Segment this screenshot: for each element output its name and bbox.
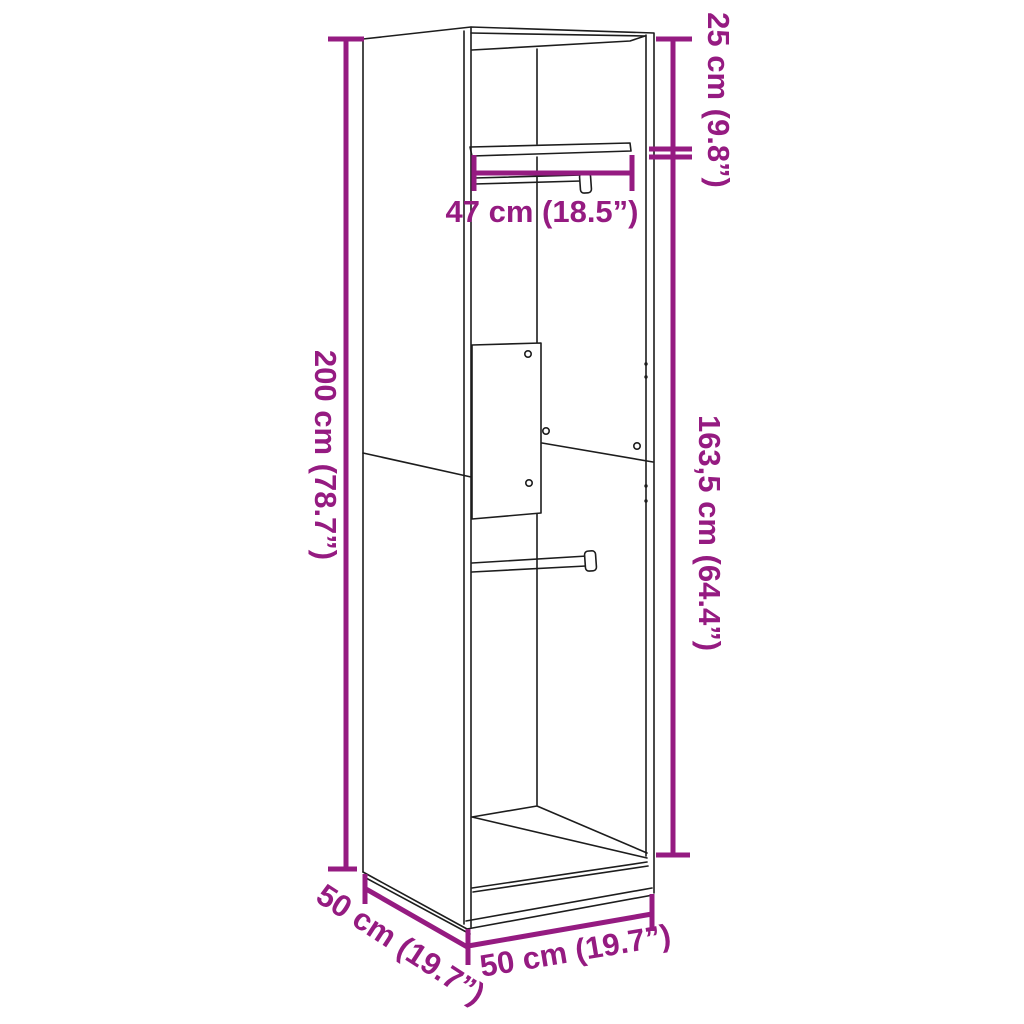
- diagram-canvas: 200 cm (78.7”) 25 cm (9.8”) 163,5 cm (64…: [0, 0, 1024, 1024]
- dimension-line-right-heights: [649, 39, 692, 855]
- right-wall-dowel-dot: [644, 499, 647, 502]
- right-wall-dowel-dot: [644, 362, 647, 365]
- hanging-rod-upper: [474, 175, 582, 184]
- dimension-width: 50 cm (19.7”): [468, 894, 673, 984]
- left-panel-seam: [363, 453, 471, 477]
- hanging-rod-upper-endcap: [579, 173, 591, 194]
- right-wall-dowel-dot: [644, 375, 647, 378]
- back-panel-hole: [634, 443, 640, 449]
- back-panel-seam: [542, 443, 653, 462]
- hanging-rod-lower: [472, 556, 587, 572]
- dimension-inner-width: 47 cm (18.5”): [446, 155, 639, 229]
- dimension-line-inner-width: [474, 155, 632, 191]
- hanging-rod-lower-endcap: [584, 551, 596, 572]
- wardrobe-dimension-diagram: 200 cm (78.7”) 25 cm (9.8”) 163,5 cm (64…: [0, 0, 1024, 1024]
- plinth-top-edge: [472, 862, 648, 892]
- top-shelf: [470, 143, 631, 156]
- dimension-total-height: 200 cm (78.7”): [308, 39, 364, 869]
- back-panel-upper: [472, 343, 541, 519]
- dimension-label-total-height: 200 cm (78.7”): [308, 350, 343, 560]
- dimension-label-top-section: 25 cm (9.8”): [701, 12, 736, 188]
- dimension-label-inner-width: 47 cm (18.5”): [446, 194, 639, 229]
- dimension-label-lower-section: 163,5 cm (64.4”): [692, 415, 727, 651]
- right-wall-dowel-dot: [644, 484, 647, 487]
- front-bottom-edge: [466, 888, 653, 929]
- top-panel-front-edge: [471, 33, 645, 36]
- back-panel-hole: [543, 428, 549, 434]
- interior-floor: [472, 806, 647, 858]
- wardrobe-drawing: [363, 27, 654, 934]
- ceiling-back-edge: [472, 36, 645, 50]
- dimension-right-heights: 25 cm (9.8”) 163,5 cm (64.4”): [649, 12, 736, 855]
